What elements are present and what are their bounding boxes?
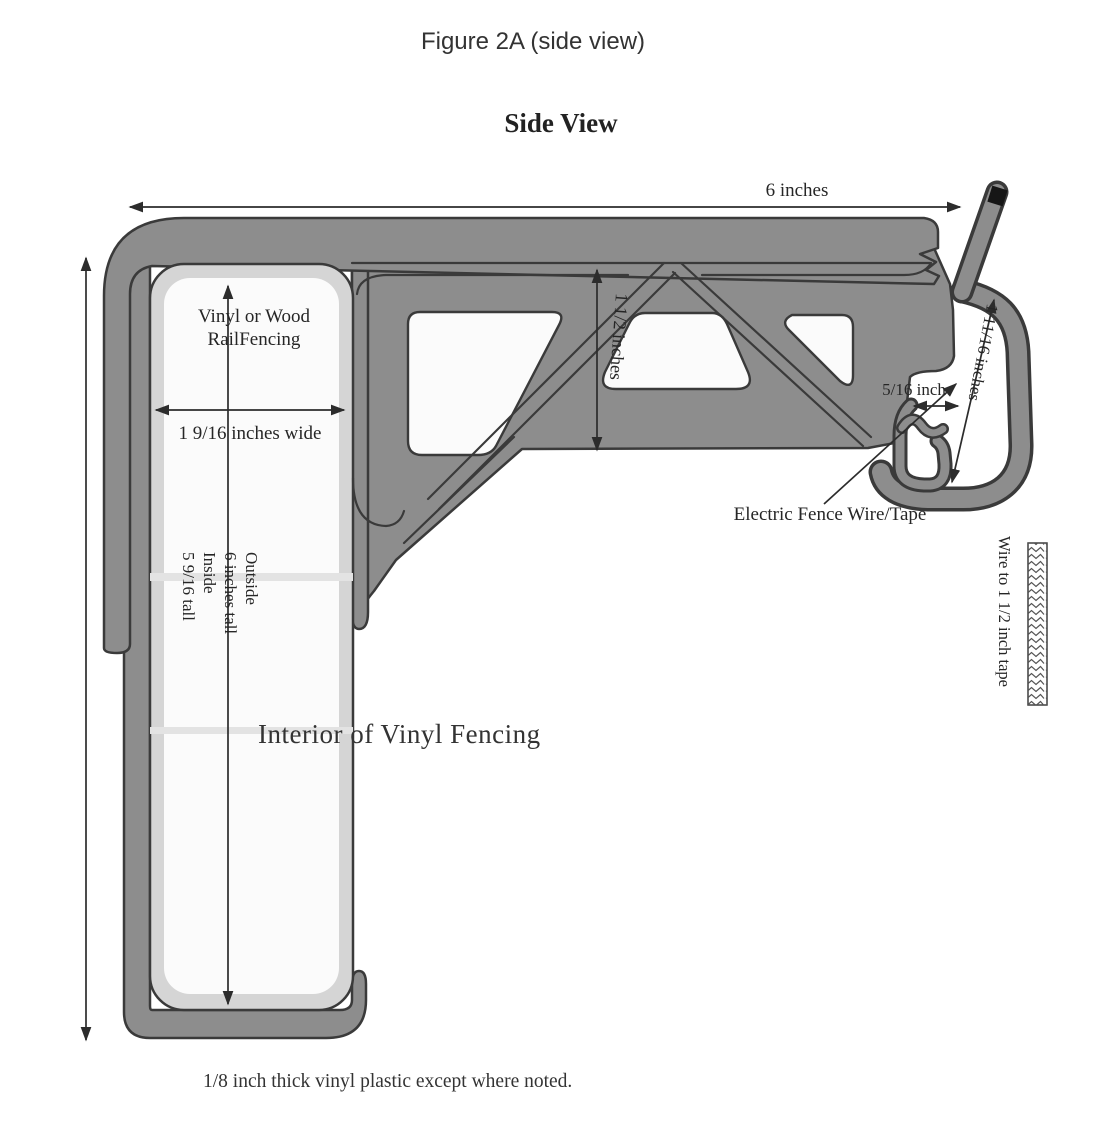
wire-tape-label: Wire to 1 1/2 inch tape bbox=[994, 536, 1014, 731]
rail-fencing-label-line1: Vinyl or Wood bbox=[179, 305, 329, 328]
interior-label: Interior of Vinyl Fencing bbox=[258, 719, 558, 750]
figure-2a-side-view: Figure 2A (side view) Side View 6 inches… bbox=[0, 0, 1100, 1148]
rail-width-label: 1 9/16 inches wide bbox=[150, 423, 350, 445]
thickness-footnote: 1/8 inch thick vinyl plastic except wher… bbox=[203, 1071, 623, 1093]
height-line-inside: Inside bbox=[199, 552, 220, 692]
bracket-diagram bbox=[0, 0, 1100, 1148]
hook-arm bbox=[962, 192, 997, 292]
side-view-heading: Side View bbox=[411, 108, 711, 139]
channel-right-wall bbox=[352, 255, 368, 629]
hook-arm-tip bbox=[995, 188, 1000, 204]
electric-wire-label: Electric Fence Wire/Tape bbox=[724, 504, 936, 526]
height-dimensions-block: Outside 6 inches tall Inside 5 9/16 tall bbox=[178, 552, 262, 692]
overall-width-label: 6 inches bbox=[737, 180, 857, 202]
height-line-outside-value: 6 inches tall bbox=[220, 552, 241, 692]
rail-fencing-label-line2: RailFencing bbox=[179, 328, 329, 351]
height-line-outside: Outside bbox=[241, 552, 262, 692]
figure-caption: Figure 2A (side view) bbox=[383, 28, 683, 56]
tape-strip-hatch bbox=[1028, 543, 1047, 705]
rail-fencing-label: Vinyl or Wood RailFencing bbox=[179, 305, 329, 351]
height-line-inside-value: 5 9/16 tall bbox=[178, 552, 199, 692]
wire-slot-label: 5/16 inch bbox=[864, 380, 964, 400]
